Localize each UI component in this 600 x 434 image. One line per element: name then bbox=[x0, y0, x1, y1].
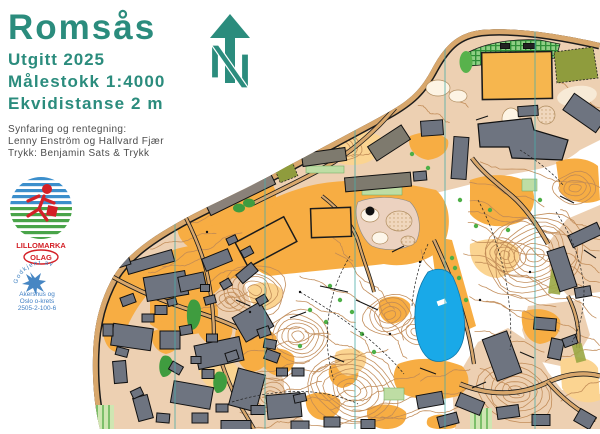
svg-text:Oslo o-krets: Oslo o-krets bbox=[20, 298, 54, 305]
svg-text:Trykk: Benjamin Sats & Trykk: Trykk: Benjamin Sats & Trykk bbox=[8, 148, 150, 159]
svg-text:Akershus og: Akershus og bbox=[19, 291, 55, 298]
svg-text:Synfaring og rentegning:: Synfaring og rentegning: bbox=[8, 124, 127, 135]
svg-text:Utgitt 2025: Utgitt 2025 bbox=[8, 50, 105, 69]
svg-text:Målestokk 1:4000: Målestokk 1:4000 bbox=[8, 72, 165, 91]
svg-text:Ekvidistanse 2 m: Ekvidistanse 2 m bbox=[8, 94, 164, 113]
svg-text:Lenny Enström og Hallvard Fjær: Lenny Enström og Hallvard Fjær bbox=[8, 136, 164, 147]
svg-text:Romsås: Romsås bbox=[8, 8, 156, 47]
svg-text:2505-2-100-6: 2505-2-100-6 bbox=[18, 305, 57, 312]
svg-text:LILLOMARKA: LILLOMARKA bbox=[16, 241, 66, 250]
